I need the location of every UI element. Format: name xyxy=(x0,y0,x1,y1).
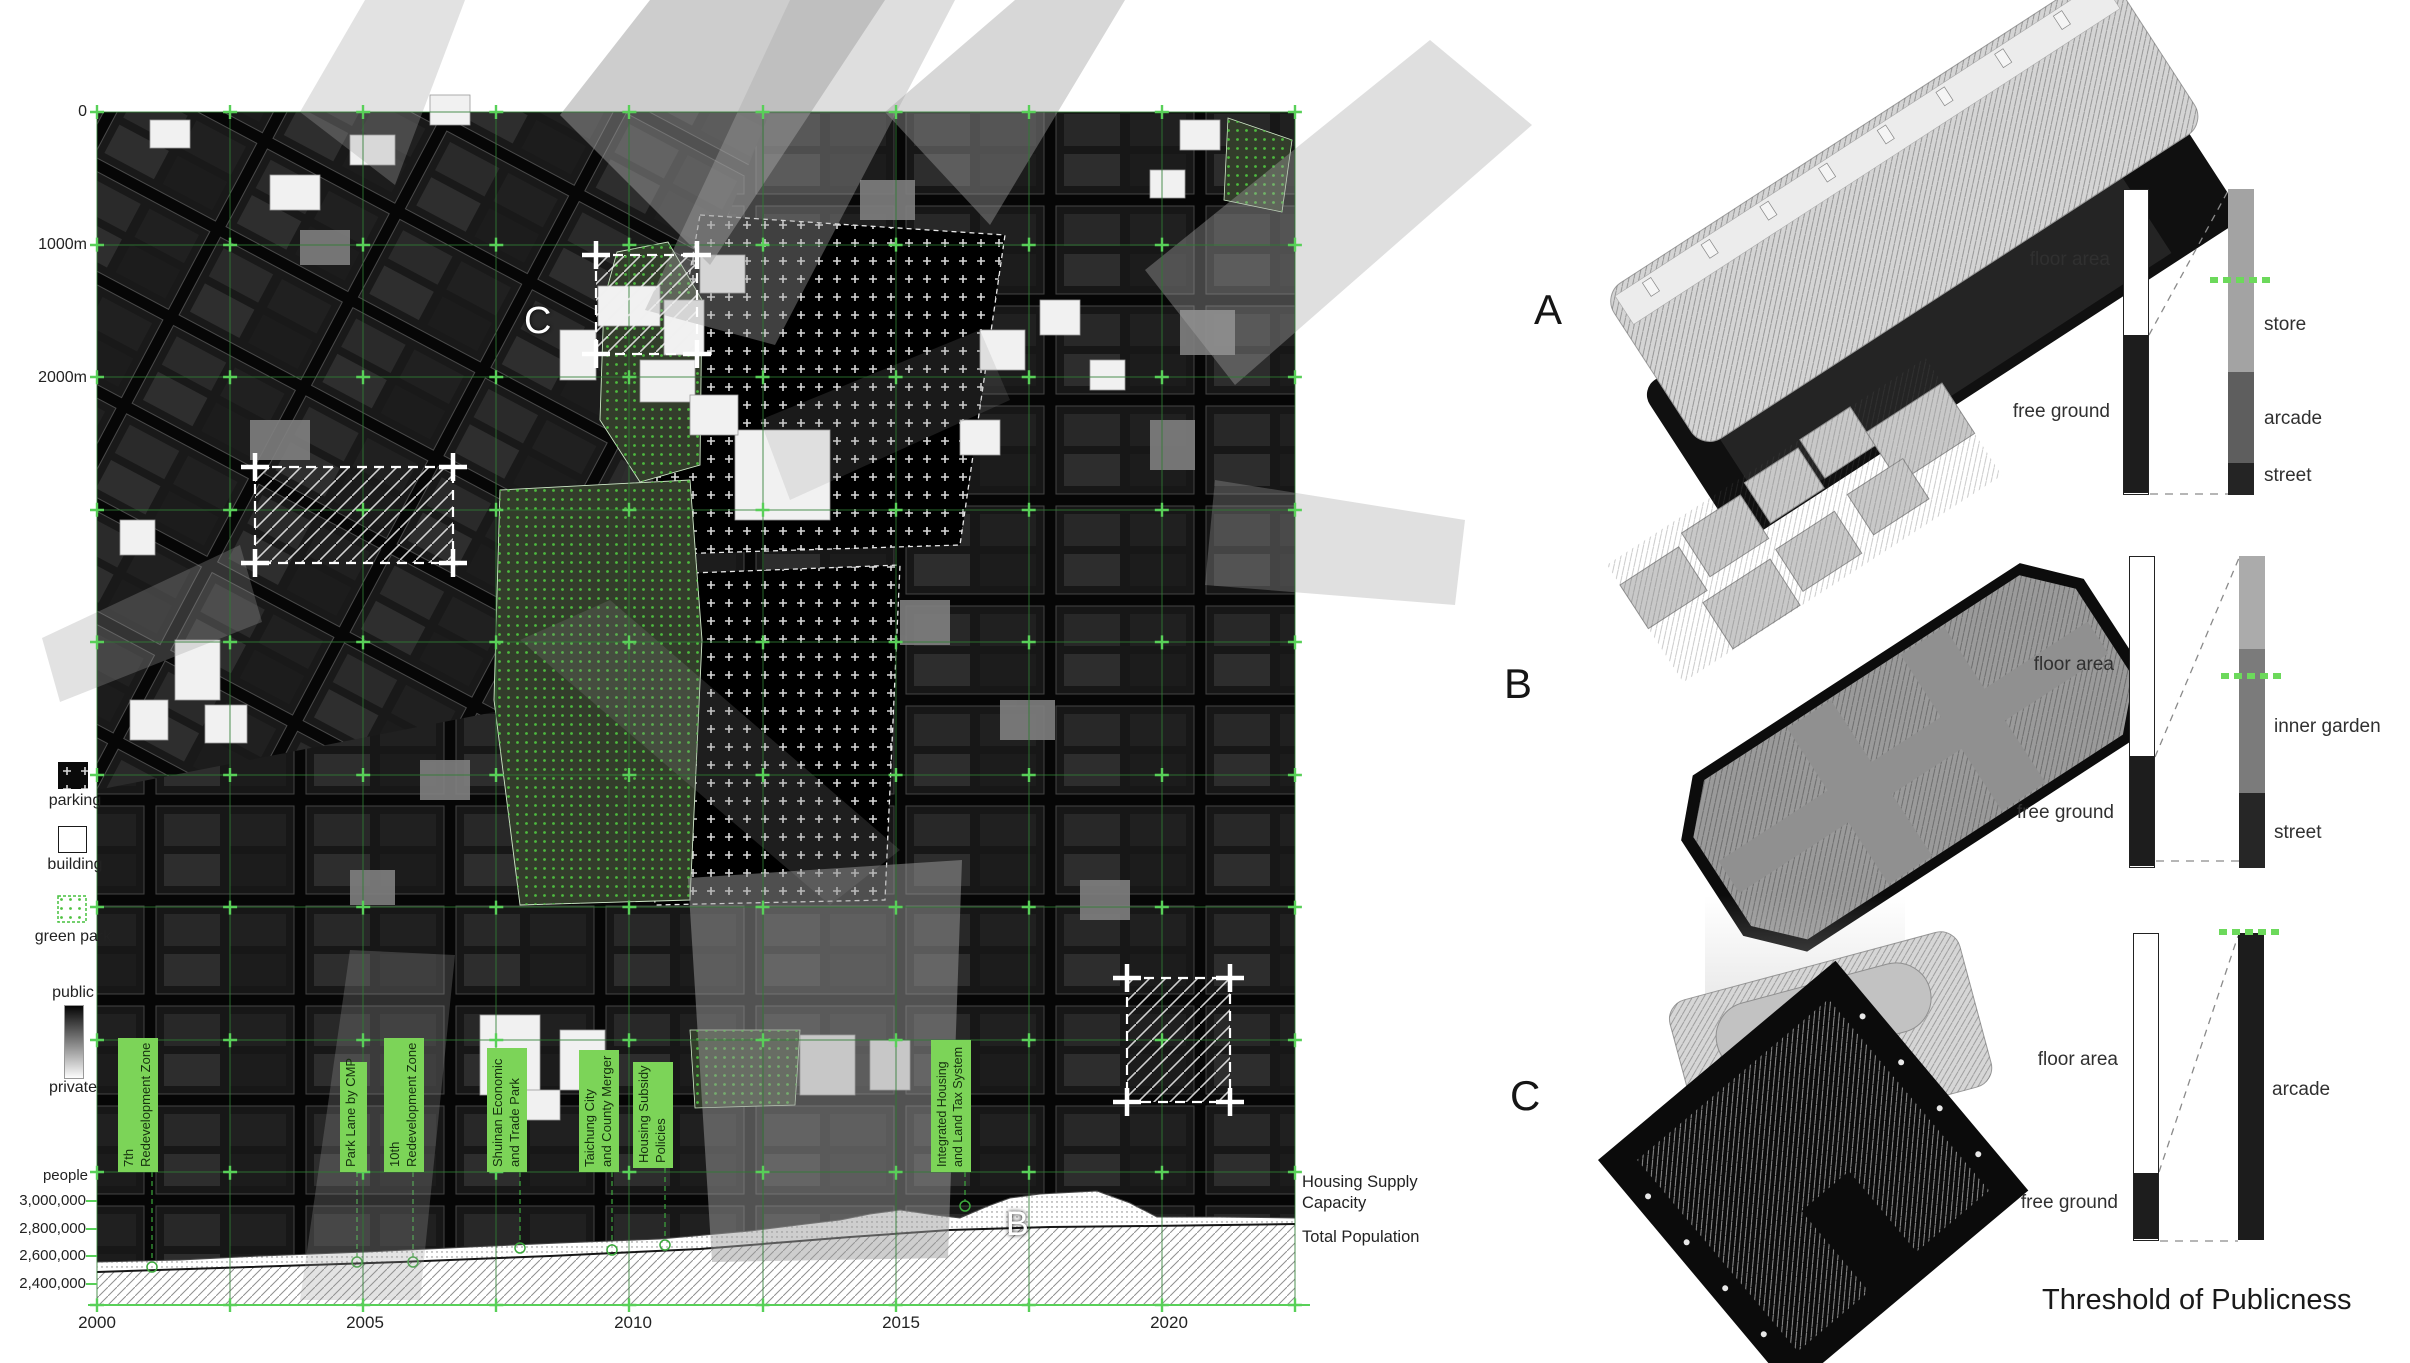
policy-line: and Trade Park xyxy=(507,1043,524,1167)
policy-line: and County Merger xyxy=(599,1045,616,1167)
row-c-floor-black xyxy=(2134,1173,2158,1239)
policy-line: Taichung City xyxy=(582,1045,599,1167)
row-c-threshold-tick xyxy=(2219,929,2283,935)
row-a-arcade-label: arcade xyxy=(2264,408,2322,430)
policy-line: Shuinan Economic xyxy=(490,1043,507,1167)
row-b-floor-area-label: floor area xyxy=(1974,654,2114,676)
row-b-inner-garden-seg xyxy=(2239,649,2265,793)
building-legend-label: building xyxy=(30,856,120,874)
ytick-2800000: 2,800,000 xyxy=(0,1220,86,1237)
axon-c xyxy=(1598,895,2028,1363)
row-c-floor-white xyxy=(2134,934,2158,1173)
public-label: public xyxy=(38,984,108,1002)
year-2015: 2015 xyxy=(869,1313,933,1333)
row-c-letter: C xyxy=(1510,1072,1540,1120)
row-a-store-label: store xyxy=(2264,314,2306,336)
ytick-2600000: 2,600,000 xyxy=(0,1247,86,1264)
row-c-floor-bar xyxy=(2133,933,2159,1241)
policy-park-lane: Park Lane by CMP xyxy=(340,1062,367,1172)
row-a-letter: A xyxy=(1534,286,1562,334)
row-a-floor-white xyxy=(2124,190,2148,335)
year-2010: 2010 xyxy=(601,1313,665,1333)
site-a-rect xyxy=(241,453,467,577)
site-c-rect xyxy=(582,241,711,368)
row-b-letter: B xyxy=(1504,660,1532,708)
green-park-swatch xyxy=(57,895,87,928)
row-a-publicness-bar xyxy=(2228,189,2254,495)
map-site-c-letter: C xyxy=(524,300,551,343)
housing-supply-label: Housing Supply Capacity xyxy=(1302,1172,1452,1213)
year-2005: 2005 xyxy=(333,1313,397,1333)
policy-housing-subsidy: Housing Subsidy Policies xyxy=(633,1062,673,1168)
row-b-floor-bar xyxy=(2129,556,2155,868)
row-c-free-ground-label: free ground xyxy=(1968,1192,2118,1214)
row-c-floor-area-label: floor area xyxy=(1978,1049,2118,1071)
row-a-street-seg xyxy=(2228,463,2254,495)
board: 0 1000m 2000m parking building green par… xyxy=(0,0,2410,1363)
row-b-street-seg xyxy=(2239,793,2265,868)
policy-line: Policies xyxy=(653,1057,670,1163)
green-park-legend-label: green park xyxy=(18,928,128,946)
row-a-floor-black xyxy=(2124,335,2148,493)
panel-title: Threshold of Publicness xyxy=(2042,1284,2352,1317)
row-b-floor-black xyxy=(2130,756,2154,866)
total-population-label: Total Population xyxy=(1302,1227,1472,1248)
policy-10th-redevelopment: 10th Redevelopment Zone xyxy=(384,1038,424,1172)
row-c-arcade-seg xyxy=(2238,933,2264,1240)
row-a-arcade-seg xyxy=(2228,372,2254,463)
scale-0-label: 0 xyxy=(55,103,87,121)
policy-line: 10th xyxy=(387,1033,404,1167)
row-b-free-ground-label: free ground xyxy=(1964,802,2114,824)
policy-shuinan: Shuinan Economic and Trade Park xyxy=(487,1048,527,1172)
scale-1000m-label: 1000m xyxy=(27,236,87,254)
row-c-publicness-bar xyxy=(2238,933,2264,1241)
row-a-threshold-tick xyxy=(2210,277,2274,283)
row-b-floor-white xyxy=(2130,557,2154,756)
year-2000: 2000 xyxy=(65,1313,129,1333)
ytick-2400000: 2,400,000 xyxy=(0,1275,86,1292)
row-a-floor-area-label: floor area xyxy=(1970,249,2110,271)
policy-line: Park Lane by CMP xyxy=(343,1057,360,1167)
row-b-street-label: street xyxy=(2274,822,2322,844)
row-b-threshold-tick xyxy=(2221,673,2285,679)
policy-land-tax: Integrated Housing and Land Tax System xyxy=(931,1040,971,1172)
ytick-3000000: 3,000,000 xyxy=(0,1192,86,1209)
policy-line: Integrated Housing xyxy=(934,1035,950,1167)
row-a-street-label: street xyxy=(2264,465,2312,487)
policy-county-merger: Taichung City and County Merger xyxy=(579,1050,619,1172)
building-swatch xyxy=(58,826,87,853)
row-c-arcade-label: arcade xyxy=(2272,1079,2330,1101)
private-label: private xyxy=(38,1079,108,1097)
policy-line: Redevelopment Zone xyxy=(138,1033,155,1167)
row-b-publicness-bar xyxy=(2239,556,2265,868)
row-a-floor-bar xyxy=(2123,189,2149,495)
parking-swatch xyxy=(58,762,88,794)
policy-line: and Land Tax System xyxy=(950,1035,966,1167)
scale-2000m-label: 2000m xyxy=(27,369,87,387)
bar-connectors xyxy=(2149,191,2239,1241)
people-axis-label: people xyxy=(18,1167,88,1184)
map-site-b-letter: B xyxy=(1006,1205,1029,1244)
row-b-inner-garden-label: inner garden xyxy=(2274,716,2381,738)
policy-7th-redevelopment: 7th Redevelopment Zone xyxy=(118,1038,158,1172)
row-a-free-ground-label: free ground xyxy=(1960,401,2110,423)
year-2020: 2020 xyxy=(1137,1313,1201,1333)
policy-line: 7th xyxy=(121,1033,138,1167)
row-b-top-seg xyxy=(2239,556,2265,649)
parking-legend-label: parking xyxy=(30,792,120,810)
site-b-rect xyxy=(1113,964,1244,1116)
public-private-gradient xyxy=(64,1005,84,1079)
policy-line: Housing Subsidy xyxy=(636,1057,653,1163)
policy-line: Redevelopment Zone xyxy=(404,1033,421,1167)
